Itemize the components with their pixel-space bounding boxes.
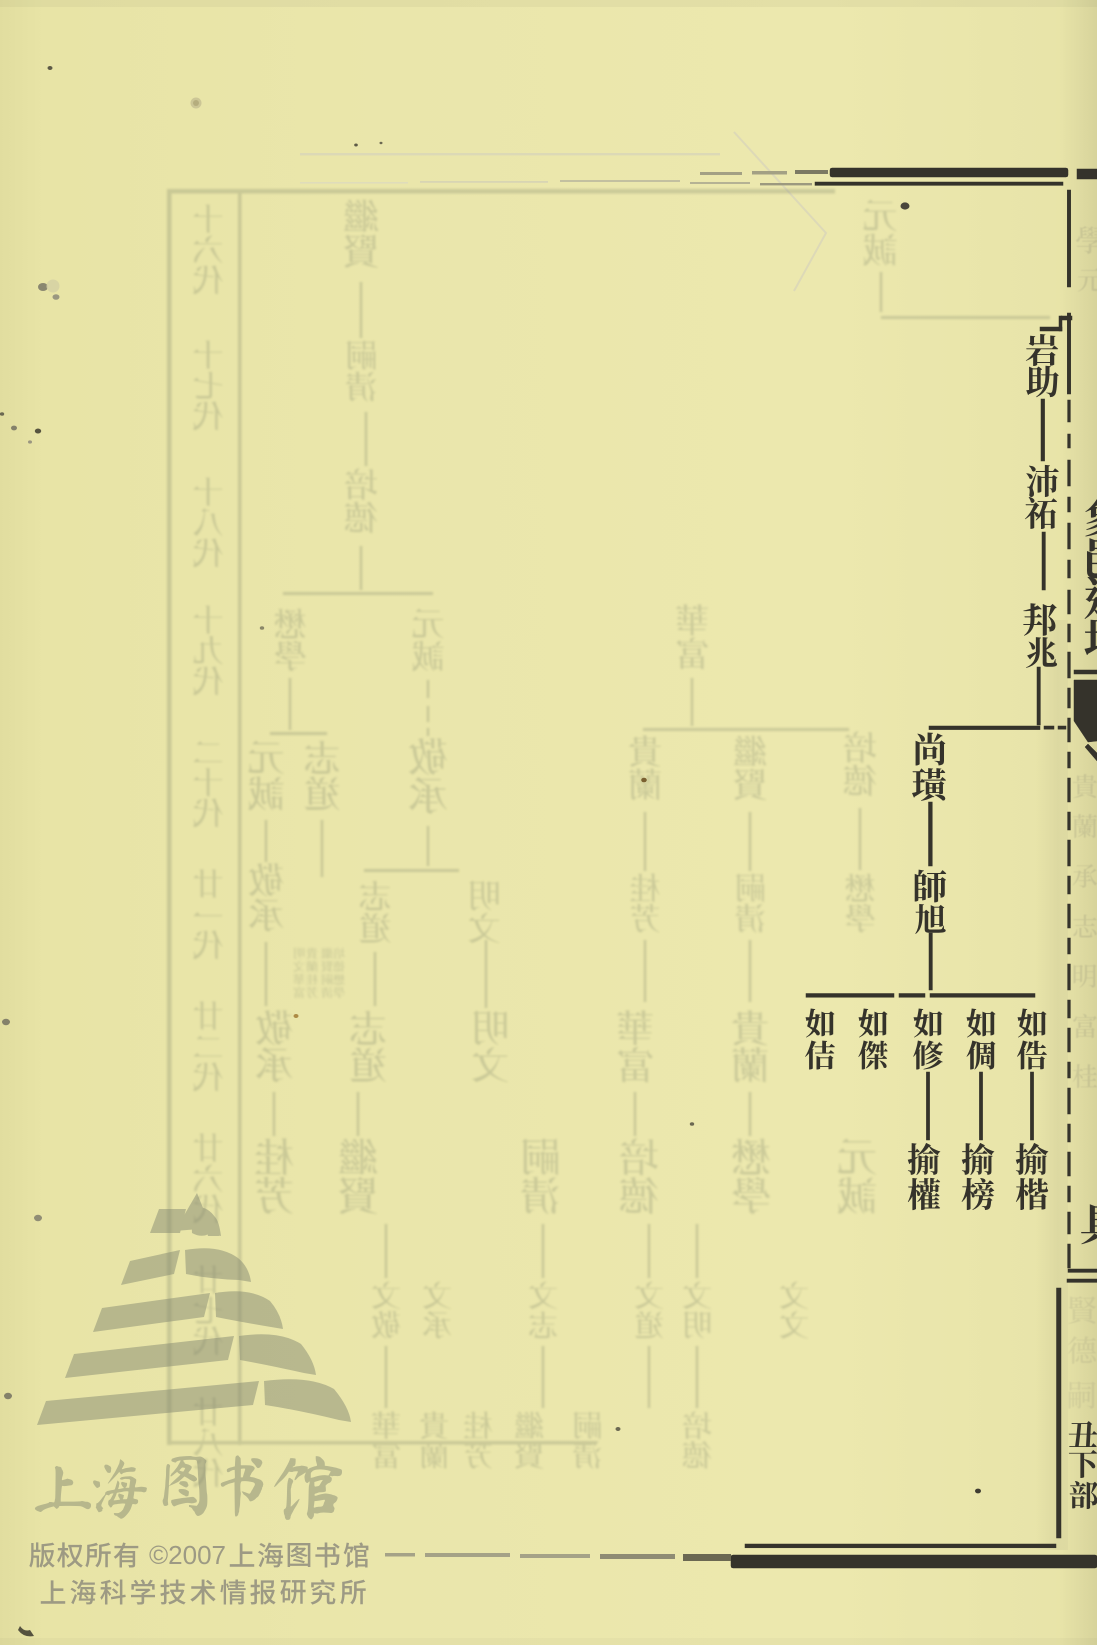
svg-text:©2007: ©2007	[149, 1540, 226, 1570]
